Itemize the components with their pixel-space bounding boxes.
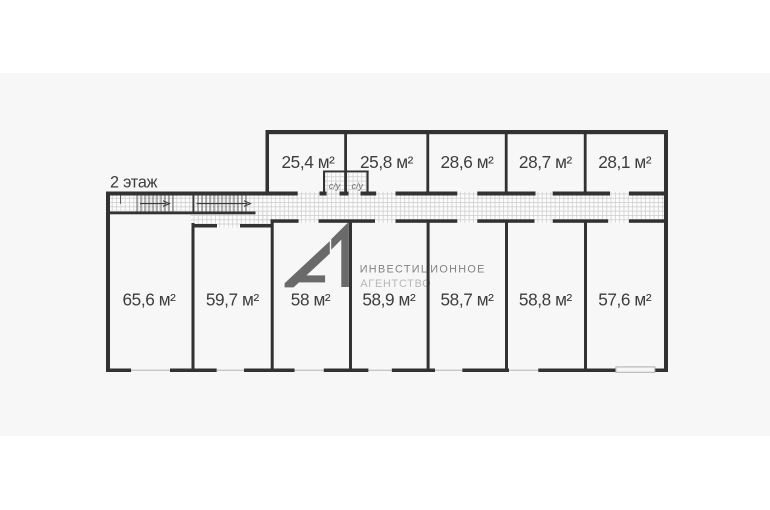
svg-text:58,9 м²: 58,9 м² — [362, 290, 416, 310]
svg-text:28,7 м²: 28,7 м² — [519, 152, 573, 172]
svg-text:57,6 м²: 57,6 м² — [598, 290, 652, 310]
svg-text:с/у: с/у — [329, 181, 341, 191]
svg-text:с/у: с/у — [352, 181, 364, 191]
svg-text:25,8 м²: 25,8 м² — [360, 152, 414, 172]
svg-text:ИНВЕСТИЦИОННОЕ: ИНВЕСТИЦИОННОЕ — [360, 263, 486, 275]
svg-text:2 этаж: 2 этаж — [110, 173, 158, 191]
svg-text:АГЕНТСТВО: АГЕНТСТВО — [360, 278, 431, 290]
svg-text:58,8 м²: 58,8 м² — [519, 290, 573, 310]
svg-text:28,1 м²: 28,1 м² — [598, 152, 652, 172]
svg-text:25,4 м²: 25,4 м² — [282, 152, 336, 172]
svg-text:58,7 м²: 58,7 м² — [441, 290, 495, 310]
svg-text:58 м²: 58 м² — [291, 290, 331, 310]
svg-text:65,6 м²: 65,6 м² — [123, 290, 177, 310]
svg-text:59,7 м²: 59,7 м² — [206, 290, 260, 310]
svg-text:28,6 м²: 28,6 м² — [441, 152, 495, 172]
